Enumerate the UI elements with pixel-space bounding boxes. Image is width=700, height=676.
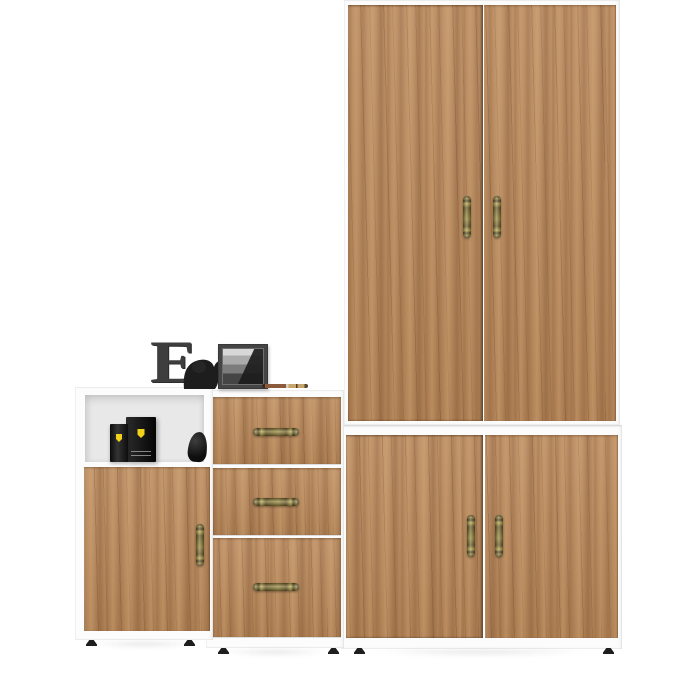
floor-shadow — [75, 642, 213, 650]
perfume-box — [126, 417, 156, 462]
drawer-middle-handle — [253, 498, 299, 506]
pencil — [262, 384, 308, 388]
perfume-bottle — [110, 424, 128, 462]
furniture-product-photo: E — [0, 0, 700, 676]
drawer-top — [212, 397, 341, 464]
ferrari-shield-icon — [116, 434, 122, 442]
shelf-cabinet-door-handle — [196, 524, 204, 566]
wardrobe-left-door-handle — [463, 196, 471, 238]
base-cabinet-right-door — [485, 435, 618, 638]
open-shelf-niche — [85, 395, 204, 462]
shelf-cabinet-door — [84, 467, 210, 631]
drawer-bottom-handle — [253, 583, 299, 591]
floor-shadow — [206, 650, 344, 658]
drawer-chest — [206, 390, 344, 648]
wardrobe-right-door — [484, 5, 616, 421]
base-cabinet-left-door — [346, 435, 483, 638]
base-cabinet-left-door-handle — [467, 515, 475, 557]
shelf-cabinet — [75, 387, 213, 640]
ferrari-shield-icon — [138, 429, 145, 438]
base-cabinet — [341, 425, 622, 649]
bird-figurine — [187, 431, 208, 462]
wardrobe-right-door-handle — [493, 196, 501, 238]
box-label-text-lines — [131, 451, 151, 458]
drawer-bottom — [212, 538, 341, 637]
photo-frame — [218, 344, 268, 389]
drawer-middle — [212, 468, 341, 535]
drawer-top-handle — [253, 428, 299, 436]
base-cabinet-right-door-handle — [495, 515, 503, 557]
black-and-white-photo — [222, 348, 264, 385]
tall-wardrobe — [344, 0, 620, 425]
floor-shadow — [341, 650, 622, 658]
